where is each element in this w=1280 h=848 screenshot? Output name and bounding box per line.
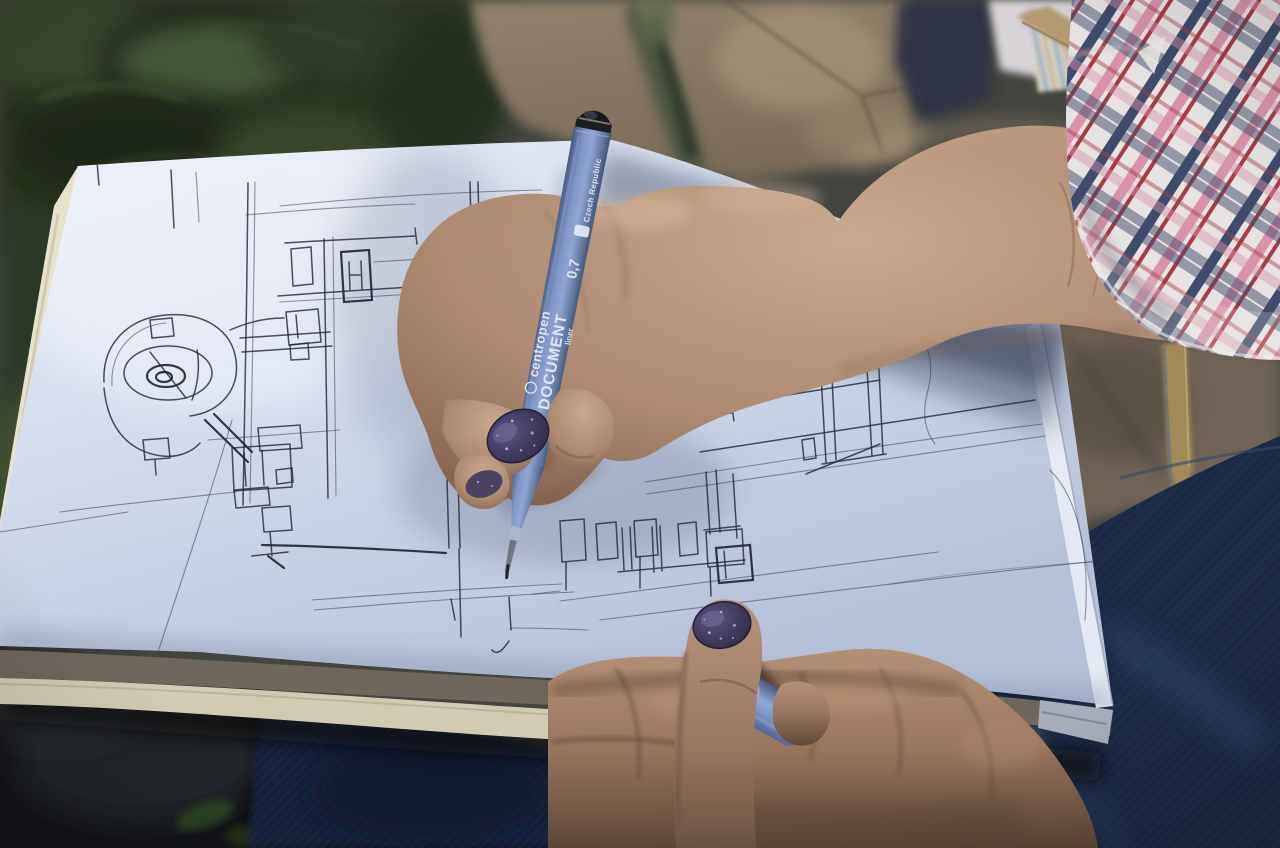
photo-canvas: Czech Republic 0,7 DOCUMENT liner centro… xyxy=(0,0,1280,848)
vignette-overlay xyxy=(0,0,1280,848)
photo-root: Czech Republic 0,7 DOCUMENT liner centro… xyxy=(0,0,1280,848)
